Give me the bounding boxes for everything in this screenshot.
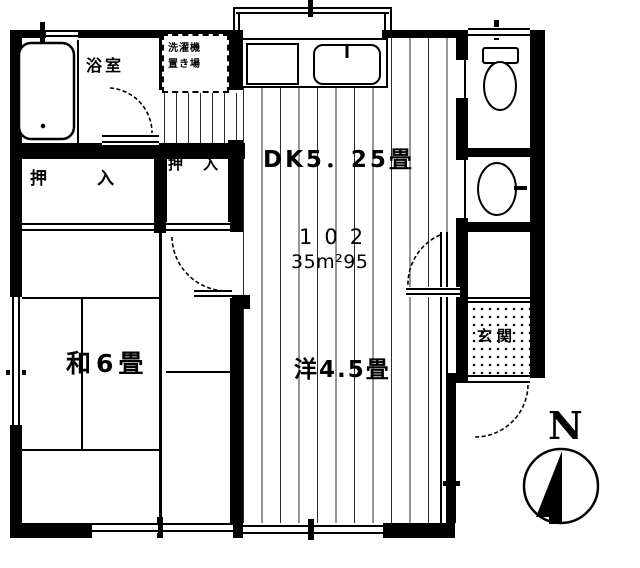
bathtub-drain	[41, 124, 46, 129]
laundry-label-line2: 置き場	[168, 60, 201, 70]
wash-basin	[478, 163, 516, 215]
floor-plan: DK5．25畳 102 35m²95 和6畳 洋4.5畳 押入 押入 浴室 玄関…	[0, 0, 640, 568]
bathroom-label: 浴室	[86, 58, 124, 74]
western-room-label: 洋4.5畳	[294, 359, 391, 382]
toilet-tank	[483, 48, 518, 63]
floor-area-label: 35m²95	[291, 253, 368, 272]
entrance-label: 玄関	[477, 329, 517, 344]
compass-needle	[536, 451, 562, 524]
entrance-door-arc	[474, 385, 528, 437]
bathtub	[19, 43, 74, 139]
closet-left-label: 押入	[30, 171, 164, 188]
japanese-room-door-arc	[172, 237, 228, 291]
closet-right-label: 押入	[168, 157, 238, 172]
room-number-label: 102	[299, 227, 375, 248]
laundry-label-line1: 洗濯機	[168, 44, 201, 54]
bath-door-arc	[110, 88, 152, 133]
toilet-bowl	[484, 62, 516, 110]
fixtures-layer	[0, 0, 640, 568]
dk-label: DK5．25畳	[263, 149, 415, 172]
compass-north-label: N	[548, 407, 583, 445]
japanese-room-label: 和6畳	[66, 351, 148, 376]
stove	[247, 44, 298, 84]
dk-door-arc	[408, 235, 440, 287]
